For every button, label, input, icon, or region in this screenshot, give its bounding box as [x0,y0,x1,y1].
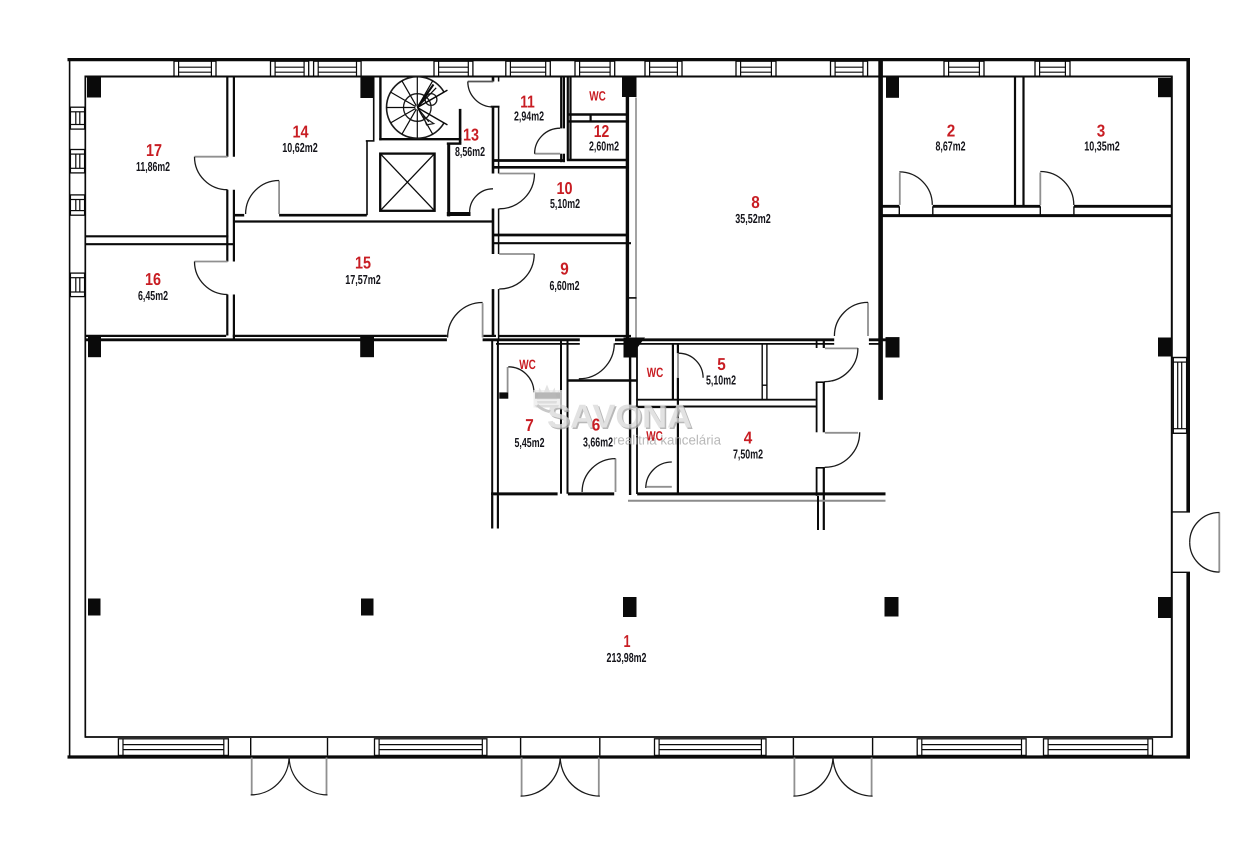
svg-text:7: 7 [525,415,534,435]
svg-text:2: 2 [947,121,956,141]
svg-text:6,45m2: 6,45m2 [138,288,168,303]
svg-text:4: 4 [744,428,753,448]
svg-text:WC: WC [647,365,664,380]
svg-text:SAVONA: SAVONA [547,398,692,435]
svg-text:5,10m2: 5,10m2 [706,372,736,387]
svg-text:5,10m2: 5,10m2 [550,196,580,211]
svg-text:11,86m2: 11,86m2 [136,159,170,174]
svg-text:15: 15 [355,253,371,273]
svg-text:8,67m2: 8,67m2 [936,139,966,154]
svg-text:10: 10 [557,178,573,198]
svg-text:5,45m2: 5,45m2 [515,435,545,450]
svg-text:17,57m2: 17,57m2 [345,272,381,287]
svg-text:2,94m2: 2,94m2 [514,109,544,124]
svg-text:1: 1 [624,631,631,651]
svg-text:2,60m2: 2,60m2 [589,139,619,154]
svg-text:7,50m2: 7,50m2 [733,447,763,462]
svg-text:WC: WC [589,89,606,104]
svg-text:6: 6 [592,415,601,435]
svg-text:5: 5 [717,354,726,374]
svg-text:6,60m2: 6,60m2 [550,278,580,293]
svg-text:8,56m2: 8,56m2 [455,144,485,159]
svg-text:realitná kancelária: realitná kancelária [613,433,721,448]
svg-text:13: 13 [463,125,479,145]
svg-text:WC: WC [519,357,536,372]
svg-text:14: 14 [293,122,309,142]
svg-text:3,66m2: 3,66m2 [583,435,613,450]
svg-text:9: 9 [560,259,569,279]
svg-text:17: 17 [146,140,162,160]
svg-text:WC: WC [646,429,663,444]
svg-text:8: 8 [751,192,760,212]
svg-text:16: 16 [145,269,161,289]
svg-text:10,62m2: 10,62m2 [282,140,318,155]
svg-text:213,98m2: 213,98m2 [607,650,647,665]
svg-text:35,52m2: 35,52m2 [735,211,771,226]
svg-text:3: 3 [1097,121,1106,141]
svg-text:10,35m2: 10,35m2 [1084,139,1120,154]
